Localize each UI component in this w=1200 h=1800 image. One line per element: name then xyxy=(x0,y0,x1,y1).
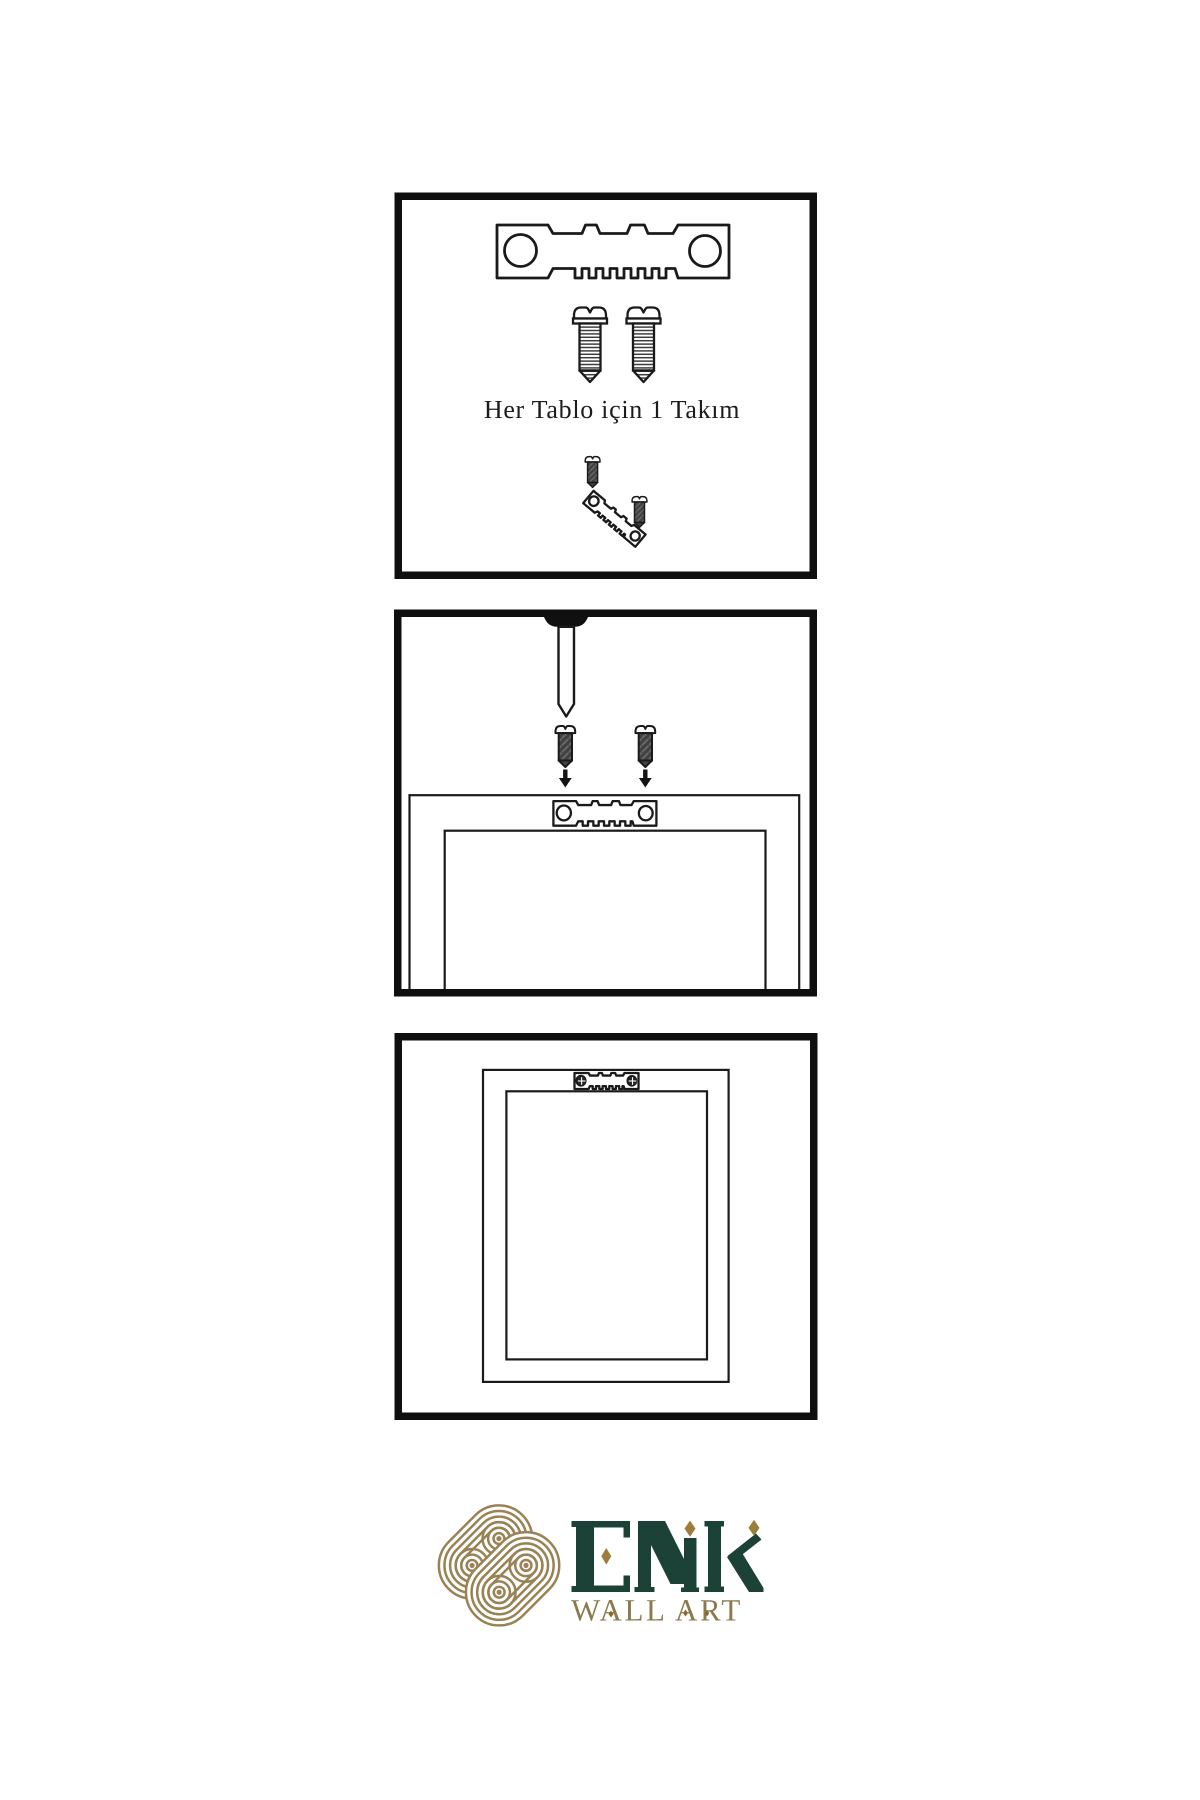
svg-text:WALL ART: WALL ART xyxy=(571,1593,743,1628)
svg-text:Her Tablo için 1 Takım: Her Tablo için 1 Takım xyxy=(484,395,740,424)
